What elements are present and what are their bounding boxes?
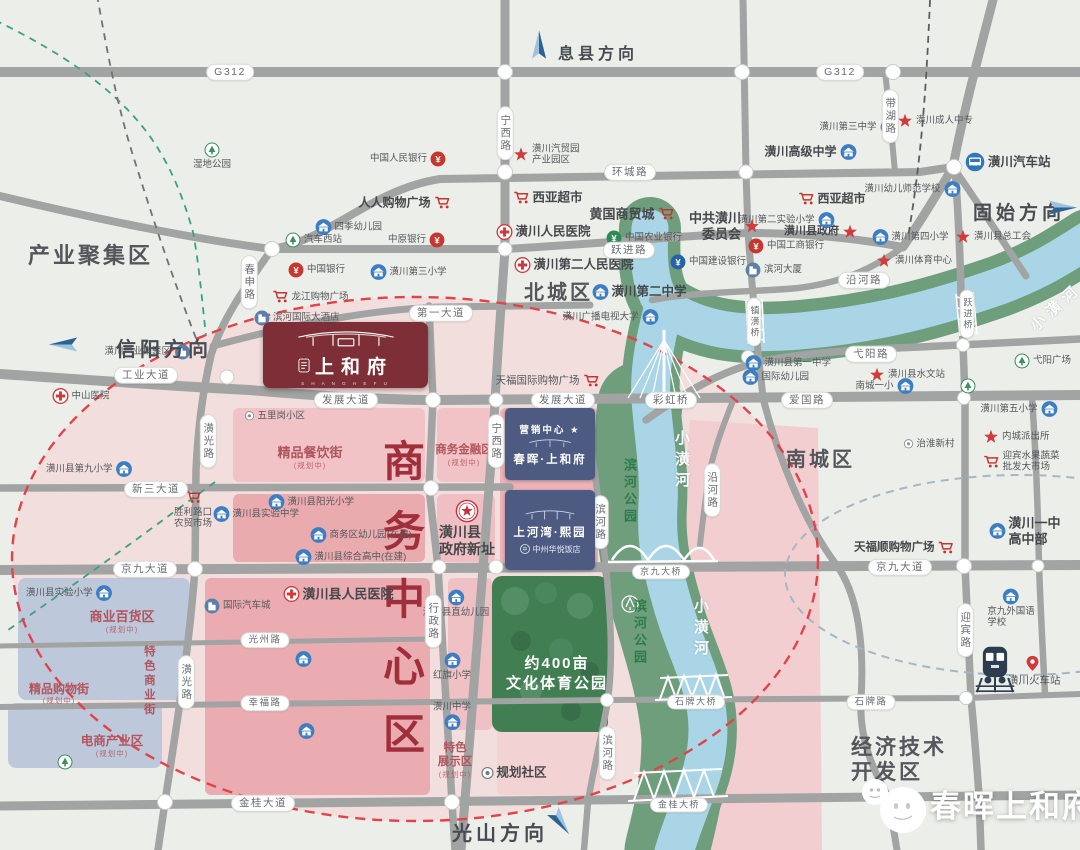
road-label: G312 <box>206 64 254 81</box>
park-label: 文化体育公园 <box>506 672 608 693</box>
school-icon <box>213 506 230 523</box>
poi-label: 潢川广播电视大学 <box>562 311 638 322</box>
school-icon <box>742 369 759 386</box>
poi-school: 红旗小学 <box>433 652 471 681</box>
poi-bankR: 中国银行 <box>288 262 345 278</box>
marketing-center-block: 营销中心 ★ 春晖·上和府 <box>505 408 595 480</box>
cart-icon <box>272 289 289 306</box>
poi-school: 潢川县实验小学 <box>26 585 113 602</box>
bankR-icon <box>430 151 446 167</box>
road-label: 光州路 <box>240 632 289 648</box>
poi-tree <box>960 378 976 394</box>
road-label: 彩虹桥 <box>645 392 697 409</box>
poi-label: 人人购物广场 <box>358 196 430 210</box>
poi-label: 迎宾水果蔬菜批发大市场 <box>1003 451 1060 474</box>
region-label: 北城区 <box>524 282 593 305</box>
poi-label: 潢川县政府新址 <box>439 524 495 558</box>
region-label: 产业聚集区 <box>28 243 153 268</box>
poi-label-line: 胜利路口 <box>174 507 212 518</box>
poi-label: 西亚超市 <box>818 192 866 206</box>
zone-label-text: 精品餐饮街 <box>277 445 342 460</box>
poi-label: 潢川人民医院 <box>516 225 591 240</box>
business-district-char: 区 <box>383 714 425 756</box>
road-label: 第一大道 <box>409 305 473 322</box>
poi-train <box>974 643 1016 696</box>
poi-label: 红旗小学 <box>433 670 471 681</box>
poi-cart: 西亚超市 <box>798 191 866 208</box>
cart-icon <box>434 195 451 212</box>
poi-tree: 弋阳广场 <box>1014 353 1071 369</box>
road-label: 带湖路 <box>882 89 899 143</box>
poi-school: 潢川广播电视大学 <box>562 309 658 326</box>
poi-label-line: 委员会 <box>689 226 741 242</box>
cart-icon <box>983 454 1000 471</box>
school-icon <box>370 264 387 281</box>
zone-label: 特色商业街 <box>141 645 155 718</box>
bankR-icon <box>288 262 304 278</box>
road-label: 工业大道 <box>114 367 178 384</box>
zone-label-sub: (规划中) <box>29 696 89 705</box>
poi-label-line: 产业园区 <box>532 155 580 166</box>
gate-icon <box>527 436 573 449</box>
poi-none: 潢川火车站 <box>1008 675 1061 688</box>
road-label: 金桂大桥 <box>650 798 708 813</box>
zone-label-sub: (规划中) <box>438 770 473 779</box>
poi-star: 潢川体育中心 <box>876 253 952 269</box>
poi-school: 潢川中学 <box>433 701 471 730</box>
school-icon <box>840 144 857 161</box>
seal-icon <box>298 358 310 373</box>
school-icon <box>1041 401 1058 418</box>
road-label: 潢光路 <box>200 414 217 468</box>
poi-bankR: 中国工商银行 <box>748 238 824 254</box>
poi-bankB: 中国建设银行 <box>670 254 746 270</box>
poi-school: 潢川一中高中部 <box>989 515 1061 546</box>
poi-label: 汽车西站 <box>304 234 342 245</box>
bankB-icon <box>670 254 686 270</box>
poi-label: 中国银行 <box>307 264 345 275</box>
starc-icon <box>455 499 479 523</box>
star-icon <box>842 224 858 240</box>
poi-label: 中共潢川委员会 <box>689 210 741 241</box>
poi-label: 中原银行 <box>388 234 426 245</box>
zone-label-sub: (规划中) <box>81 749 144 758</box>
poi-cart: 天福国际购物广场 <box>496 373 600 390</box>
star-icon <box>513 147 529 163</box>
road-label: 春申路 <box>241 255 258 309</box>
poi-bldg: 国际汽车城 <box>204 598 271 614</box>
poi-school: 商务区幼儿园(在建) <box>310 527 412 544</box>
road-label: 弋阳路 <box>845 346 897 363</box>
poi-bldg: 滨河大厦 <box>745 262 802 278</box>
dot-icon <box>903 438 914 449</box>
poi-label: 潢川县第一中学 <box>765 357 832 368</box>
poi-label-line: 中共潢川 <box>689 210 741 226</box>
river-label: 滨河公园 <box>620 458 639 526</box>
zone-label-sub: (规划中) <box>89 625 154 634</box>
poi-label: 潢川第三小学 <box>390 266 447 277</box>
zone-label-text: 精品购物街 <box>29 682 89 696</box>
poi-tree: 湿地公园 <box>193 142 231 170</box>
region-label: 经济技术 <box>851 736 947 760</box>
poi-label: 潢川县实验小学 <box>26 587 93 598</box>
zone-label-text: 商业百货区 <box>89 609 154 624</box>
hosp-icon <box>496 224 513 241</box>
school-icon <box>944 181 961 198</box>
poi-label: 黄国商贸城 <box>589 206 654 222</box>
school-icon <box>443 714 460 731</box>
zone-label-text: 展示区 <box>438 756 473 768</box>
road-label: 沿河路 <box>838 272 890 289</box>
region-label: 南城区 <box>786 449 855 472</box>
poi-school: 南城一小 <box>855 378 913 395</box>
road-label: 发展大道 <box>531 392 595 409</box>
star-icon <box>897 113 913 129</box>
poi-label: 规划社区 <box>497 766 547 781</box>
road-label: 幸福路 <box>240 695 289 711</box>
poi-label: 内城派出所 <box>1002 431 1050 442</box>
gate-icon <box>286 325 406 351</box>
poi-dot: 五里岗小区 <box>244 410 306 421</box>
poi-label: 天福国际购物广场 <box>496 375 580 388</box>
poi-hosp: 潢川县人民医院 <box>283 586 394 603</box>
poi-label: 潢川第二人民医院 <box>534 258 634 273</box>
poi-label: 潢川成人中专 <box>916 115 973 126</box>
poi-label: 潢川中学 <box>433 701 471 712</box>
poi-school: 潢川第三小学 <box>370 264 447 281</box>
poi-school: 潢川第二中学 <box>592 284 687 301</box>
tree-icon <box>57 754 73 770</box>
road-label: 石牌路 <box>846 694 895 710</box>
poi-label-line: 政府新址 <box>439 541 495 558</box>
gov-icon <box>481 767 494 780</box>
cart-icon <box>658 206 675 223</box>
poi-label: 潢川第四小学 <box>892 231 949 242</box>
poi-label: 五里岗小区 <box>258 410 306 421</box>
school-icon <box>116 461 133 478</box>
school-icon <box>642 309 659 326</box>
road-label: 石牌大桥 <box>667 695 725 710</box>
zone-label: 精品餐饮街(规划中) <box>277 445 342 470</box>
poi-school: 潢川县第九小学 <box>46 461 133 478</box>
direction-arrow-icon <box>546 814 576 836</box>
tree-icon <box>1014 353 1030 369</box>
poi-bankR: 中原银行 <box>388 232 445 248</box>
zone-label-sub: (规划中) <box>435 458 493 467</box>
tree-icon <box>285 232 301 248</box>
cart-icon <box>513 190 530 207</box>
road-label: 镇潢桥 <box>747 298 762 347</box>
poi-label: 弋阳广场 <box>1033 355 1071 366</box>
poi-school: 国际幼儿园 <box>742 369 810 386</box>
bldg-icon <box>204 598 220 614</box>
school-icon <box>295 651 312 668</box>
zone-label: 商务金融区(规划中) <box>435 444 493 467</box>
marketing-center-name: 春晖·上和府 <box>513 451 586 467</box>
star-icon <box>955 229 971 245</box>
poi-cart: 迎宾水果蔬菜批发大市场 <box>983 451 1060 474</box>
project-name: 上和府 <box>315 352 393 379</box>
zone-label: 精品购物街(规划中) <box>29 682 89 705</box>
zone-label-text: 电商产业区 <box>81 734 144 748</box>
tree-icon <box>204 142 220 158</box>
direction-arrow-icon <box>48 336 78 358</box>
poi-school: 潢川县实验中学 <box>213 506 300 523</box>
poi-school: 潢川第五小学 <box>980 401 1057 418</box>
poi-label-line: 潢川县 <box>439 524 495 541</box>
dot-icon <box>244 410 255 421</box>
poi-cart: 天福顺购物广场 <box>854 540 955 557</box>
zone-label: 电商产业区(规划中) <box>81 734 144 758</box>
zone-label-text: 商务金融区 <box>435 444 493 456</box>
marketing-center-tag: 营销中心 ★ <box>519 422 580 436</box>
school-icon <box>592 284 609 301</box>
gate-icon <box>523 506 577 522</box>
school-icon <box>443 652 460 669</box>
poi-star: 潢川县总工会 <box>955 229 1031 245</box>
poi-label: 湿地公园 <box>193 159 231 170</box>
school-icon <box>310 527 327 544</box>
zone-label: 展示区(规划中) <box>438 756 473 779</box>
poi-label-line: 批发大市场 <box>1003 462 1060 473</box>
poi-school: 潢川幼儿师范学校 <box>864 181 960 198</box>
river-label: 小潢河 <box>671 430 692 493</box>
road-label: 潢光路 <box>178 655 195 709</box>
poi-label: 潢川县人民医院 <box>303 586 394 602</box>
brand-watermark-text: 春晖上和府 <box>930 781 1080 826</box>
hosp-icon <box>52 388 69 405</box>
poi-school <box>295 651 312 668</box>
poi-hosp: 潢川人民医院 <box>496 224 591 241</box>
zone-label: 商业百货区(规划中) <box>89 609 154 634</box>
pin-icon <box>1024 655 1041 672</box>
poi-label: 潢川第三中学 <box>819 121 876 132</box>
poi-tree <box>57 754 73 770</box>
hosp-icon <box>283 586 300 603</box>
poi-cart: 西亚超市 <box>513 190 583 207</box>
poi-hosp: 中山医院 <box>52 388 110 405</box>
zone-label: 特色 <box>444 742 467 756</box>
hosp-icon <box>514 257 531 274</box>
road-label: 京九大道 <box>868 559 932 576</box>
poi-school: 潢川高级中学 <box>764 144 856 161</box>
train-icon <box>974 643 1016 696</box>
poi-school: 潢川县综合高中(在建) <box>295 549 407 566</box>
business-district-char: 心 <box>383 646 425 688</box>
poi-label: 南城一小 <box>855 380 893 391</box>
poi-label: 潢川第五小学 <box>980 403 1037 414</box>
poi-label: 潢川体育中心 <box>895 255 952 266</box>
school-icon <box>872 229 889 246</box>
school-icon <box>897 378 914 395</box>
cart-icon <box>798 191 815 208</box>
poi-star: 潢川汽贸园产业园区 <box>513 144 580 167</box>
map-canvas: ¥ ¥ ¥ <box>0 0 1080 850</box>
poi-label: 滨河大厦 <box>764 264 802 275</box>
poi-star: 潢川成人中专 <box>897 113 973 129</box>
poi-label: 国际汽车城 <box>223 600 271 611</box>
school-icon <box>96 585 113 602</box>
wechat-chat-icon <box>858 772 940 834</box>
poi-label: 潢川火车站 <box>1008 675 1061 688</box>
zone-label-text: 特色 <box>444 742 467 754</box>
poi-cart: 黄国商贸城 <box>589 206 674 223</box>
poi-label-line: 潢川汽贸园 <box>532 144 580 155</box>
poi-school <box>298 723 315 740</box>
poi-label: 潢川一中高中部 <box>1009 515 1061 546</box>
road-label: 行政路 <box>425 594 442 648</box>
poi-pin <box>1024 655 1041 672</box>
poi-hosp: 潢川第二人民医院 <box>514 257 634 274</box>
school-icon <box>1002 588 1019 605</box>
school-icon <box>818 212 835 229</box>
bankR-icon <box>748 238 764 254</box>
poi-starc: 潢川县政府新址 <box>439 499 495 558</box>
bldg-icon <box>745 262 761 278</box>
road-label: 金桂大道 <box>231 795 295 812</box>
poi-label: 潢川汽车站 <box>988 155 1051 170</box>
river-label: 小潢河 <box>690 598 711 661</box>
road-label: 京九大桥 <box>632 565 690 580</box>
poi-cart: 人人购物广场 <box>358 195 450 212</box>
zone-label-text: 特色商业街 <box>143 645 155 718</box>
school-icon <box>447 589 464 606</box>
road-label: 发展大道 <box>314 392 378 409</box>
poi-label: 中山医院 <box>72 390 110 401</box>
road-label: 宁西路 <box>497 106 514 160</box>
school-icon <box>298 723 315 740</box>
poi-label: 潢川县综合高中(在建) <box>315 551 407 562</box>
star-icon <box>983 429 999 445</box>
direction-arrow-icon <box>524 36 554 58</box>
road-label: 沿河路 <box>704 463 721 517</box>
poi-label: 潢川幼儿师范学校 <box>864 183 940 194</box>
poi-tree: 汽车西站 <box>285 232 342 248</box>
poi-gov: 规划社区 <box>481 766 547 781</box>
poi-dot: 治淮新村 <box>903 438 955 449</box>
poi-label: 国际幼儿园 <box>762 371 810 382</box>
poi-star: 内城派出所 <box>983 429 1050 445</box>
poi-label: 中国工商银行 <box>767 240 824 251</box>
poi-label: 四季幼儿园 <box>335 221 383 232</box>
direction-arrow-icon <box>1048 199 1078 221</box>
bus-icon <box>965 152 985 172</box>
shanghefu-project-block: 上和府 S H A N G H E F U <box>263 322 428 388</box>
poi-label-line: 迎宾水果蔬菜 <box>1003 451 1060 462</box>
park-label: 约400亩 <box>524 652 589 673</box>
poi-label: 天福顺购物广场 <box>854 541 935 555</box>
road-label: 环城路 <box>604 164 656 181</box>
poi-label: 龙江购物广场 <box>292 291 349 302</box>
poi-label: 中国人民银行 <box>370 153 427 164</box>
road-label: 跃进桥 <box>960 290 975 339</box>
poi-label: 潢川县第九小学 <box>46 463 113 474</box>
road-label: 迎宾路 <box>957 603 974 657</box>
poi-label-line: 京九外国语 <box>987 606 1035 617</box>
road-label: 滨河路 <box>599 726 616 780</box>
poi-label: 胜利路口农贸市场 <box>174 507 212 530</box>
bankR-icon <box>429 232 445 248</box>
poi-label: 商务区幼儿园(在建) <box>330 529 412 540</box>
poi-label: 潢川高级中学 <box>764 145 836 159</box>
poi-label: 潢川第二中学 <box>612 285 687 300</box>
school-icon <box>989 523 1006 540</box>
poi-label: 中国建设银行 <box>689 256 746 267</box>
poi-label-line: 潢川一中 <box>1009 515 1061 531</box>
river-label: 小潢河 <box>1025 278 1080 336</box>
tree-icon <box>960 378 976 394</box>
poi-star: 中共潢川委员会 <box>689 210 760 241</box>
poi-bus: 潢川汽车站 <box>965 152 1051 172</box>
star-icon <box>876 253 892 269</box>
hotel-name: 中州华悦饭店 <box>533 544 581 555</box>
cart-icon <box>938 540 955 557</box>
xiyuan-project-block: 上河湾·熙园 中 中州华悦饭店 <box>505 490 595 570</box>
business-district-char: 商 <box>383 441 425 483</box>
poi-school: 潢川第四小学 <box>872 229 949 246</box>
road-label: 跃进路 <box>603 242 655 259</box>
poi-label-line: 高中部 <box>1009 531 1061 547</box>
road-label: G312 <box>816 64 864 81</box>
direction-label: 息县方向 <box>558 40 638 64</box>
poi-label: 潢川县总工会 <box>974 231 1031 242</box>
svg-text:中: 中 <box>522 546 527 553</box>
zone-label-sub: (规划中) <box>277 461 342 470</box>
poi-label: 西亚超市 <box>533 191 583 206</box>
road-label: 爱国路 <box>781 392 833 409</box>
poi-school: 京九外国语学校 <box>987 588 1035 629</box>
road-label: 京九大道 <box>113 561 177 578</box>
xiyuan-name: 上河湾·熙园 <box>513 524 586 540</box>
poi-label: 京九外国语学校 <box>987 606 1035 629</box>
poi-label: 潢川汽贸园产业园区 <box>532 144 580 167</box>
brand-watermark: 春晖上和府 <box>858 772 1080 834</box>
school-icon <box>295 549 312 566</box>
poi-label-line: 学校 <box>987 617 1035 628</box>
road-label: 新三大道 <box>124 481 188 498</box>
star-icon <box>744 218 760 234</box>
river-label: 滨河公园 <box>630 599 649 667</box>
direction-label: 信阳方向 <box>116 333 212 362</box>
poi-label: 治淮新村 <box>917 438 955 449</box>
poi-cart: 龙江购物广场 <box>272 289 349 306</box>
road-label: 宁西路 <box>488 414 505 468</box>
hotel-icon: 中 <box>520 544 530 554</box>
poi-bankR: 中国人民银行 <box>370 151 446 167</box>
project-name-en: S H A N G H E F U <box>301 381 390 386</box>
poi-label-line: 农贸市场 <box>174 518 212 529</box>
cart-icon <box>583 373 600 390</box>
poi-label: 潢川县实验中学 <box>233 508 300 519</box>
direction-label: 光山方向 <box>452 817 548 846</box>
